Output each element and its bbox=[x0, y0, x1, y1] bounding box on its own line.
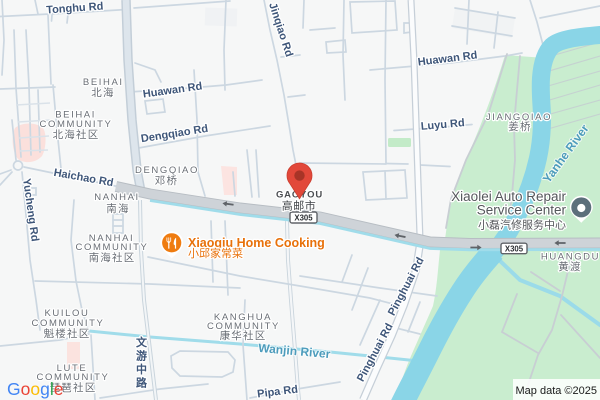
svg-text:小磊汽修服务中心: 小磊汽修服务中心 bbox=[478, 218, 566, 232]
svg-text:小邱家常菜: 小邱家常菜 bbox=[188, 246, 243, 260]
svg-text:中: 中 bbox=[136, 362, 147, 376]
svg-text:Map data ©2025: Map data ©2025 bbox=[516, 385, 598, 397]
svg-text:X305: X305 bbox=[505, 245, 524, 254]
svg-text:南海: 南海 bbox=[106, 202, 129, 215]
svg-text:Service Center: Service Center bbox=[477, 203, 567, 218]
svg-text:南海社区: 南海社区 bbox=[89, 251, 136, 264]
svg-text:高邮市: 高邮市 bbox=[282, 199, 317, 213]
svg-text:魁楼社区: 魁楼社区 bbox=[44, 327, 91, 340]
svg-text:邓桥: 邓桥 bbox=[155, 175, 178, 187]
svg-text:康华社区: 康华社区 bbox=[220, 329, 267, 342]
svg-text:黄渡: 黄渡 bbox=[558, 260, 581, 273]
svg-text:NANHAI: NANHAI bbox=[94, 192, 140, 203]
svg-text:X305: X305 bbox=[294, 214, 313, 223]
svg-text:北海社区: 北海社区 bbox=[53, 128, 100, 141]
svg-text:路: 路 bbox=[136, 376, 148, 390]
svg-text:北海: 北海 bbox=[91, 86, 114, 99]
svg-text:文: 文 bbox=[136, 335, 148, 349]
svg-text:姜桥: 姜桥 bbox=[508, 120, 531, 133]
svg-text:Google: Google bbox=[7, 379, 63, 399]
svg-text:游: 游 bbox=[136, 349, 147, 363]
